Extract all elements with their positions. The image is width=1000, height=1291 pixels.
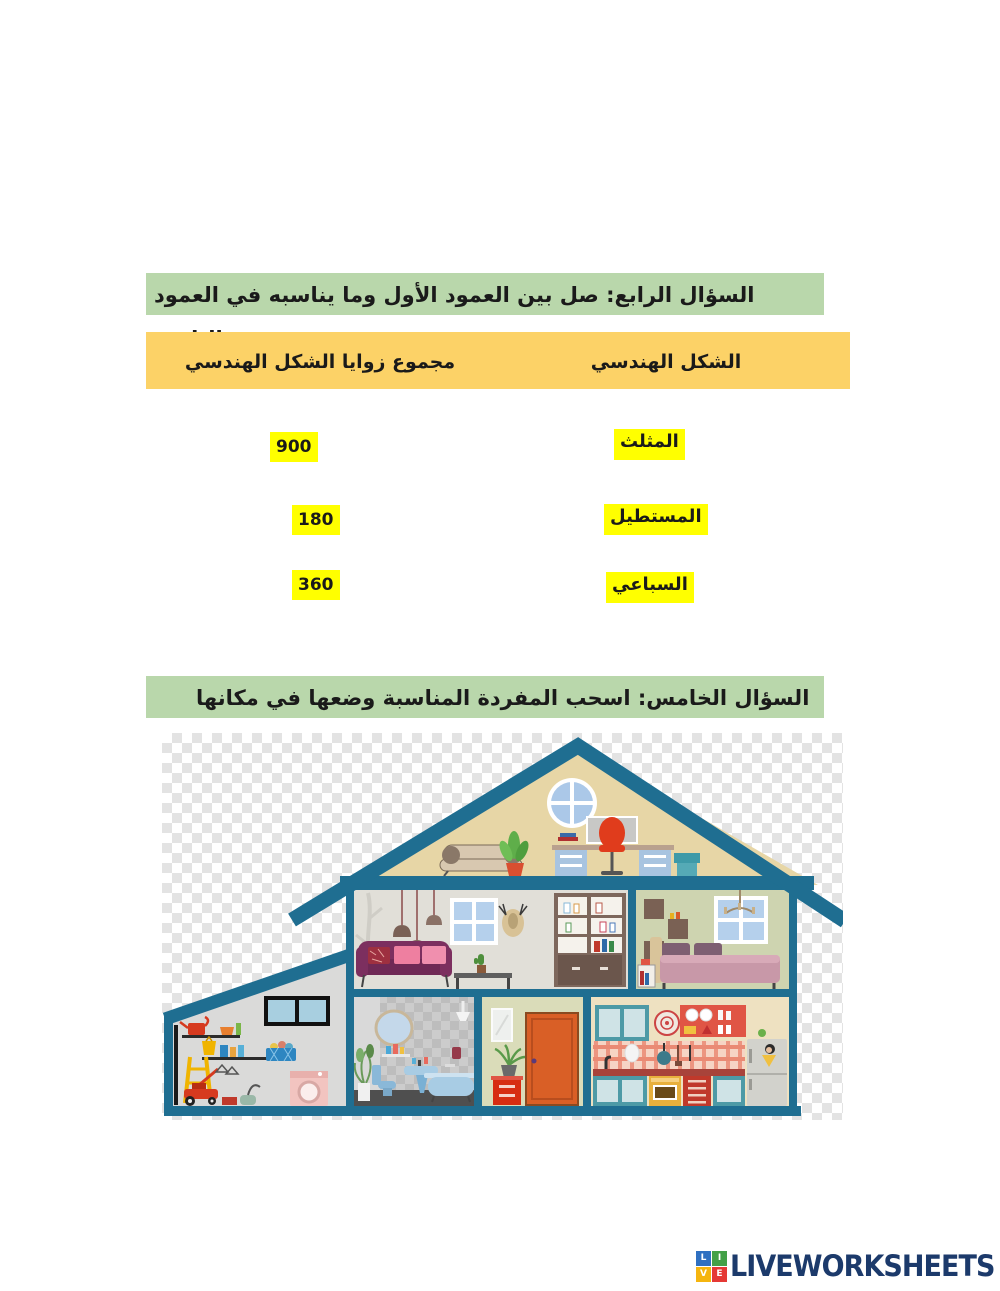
house-illustration xyxy=(162,733,843,1120)
question4-header: السؤال الرابع: صل بين العمود الأول وما ي… xyxy=(146,273,824,315)
worksheet-page: السؤال الرابع: صل بين العمود الأول وما ي… xyxy=(0,0,1000,1291)
question5-header: السؤال الخامس: اسحب المفردة المناسبة وضع… xyxy=(146,676,824,718)
match-shape-heptagon[interactable]: السباعي xyxy=(606,572,694,603)
liveworksheets-logo[interactable]: L I V E LIVEWORKSHEETS xyxy=(696,1249,1000,1283)
match-value-360[interactable]: 360 xyxy=(292,570,340,600)
house-cutaway-drawing xyxy=(162,733,843,1120)
matching-table-header: مجموع زوايا الشكل الهندسي الشكل الهندسي xyxy=(146,332,850,389)
logo-square-e: E xyxy=(712,1267,727,1282)
logo-square-v: V xyxy=(696,1267,711,1282)
match-value-180[interactable]: 180 xyxy=(292,505,340,535)
brand-name: LIVEWORKSHEETS xyxy=(730,1249,995,1283)
column-header-shape: الشكل الهندسي xyxy=(526,332,806,389)
logo-square-l: L xyxy=(696,1251,711,1266)
match-shape-triangle[interactable]: المثلث xyxy=(614,429,685,460)
liveworksheets-logo-icon: L I V E xyxy=(696,1251,727,1282)
hallway-contents xyxy=(491,1009,578,1105)
column-header-angle-sum: مجموع زوايا الشكل الهندسي xyxy=(180,332,460,389)
logo-square-i: I xyxy=(712,1251,727,1266)
match-value-900[interactable]: 900 xyxy=(270,432,318,462)
match-shape-rectangle[interactable]: المستطيل xyxy=(604,504,708,535)
